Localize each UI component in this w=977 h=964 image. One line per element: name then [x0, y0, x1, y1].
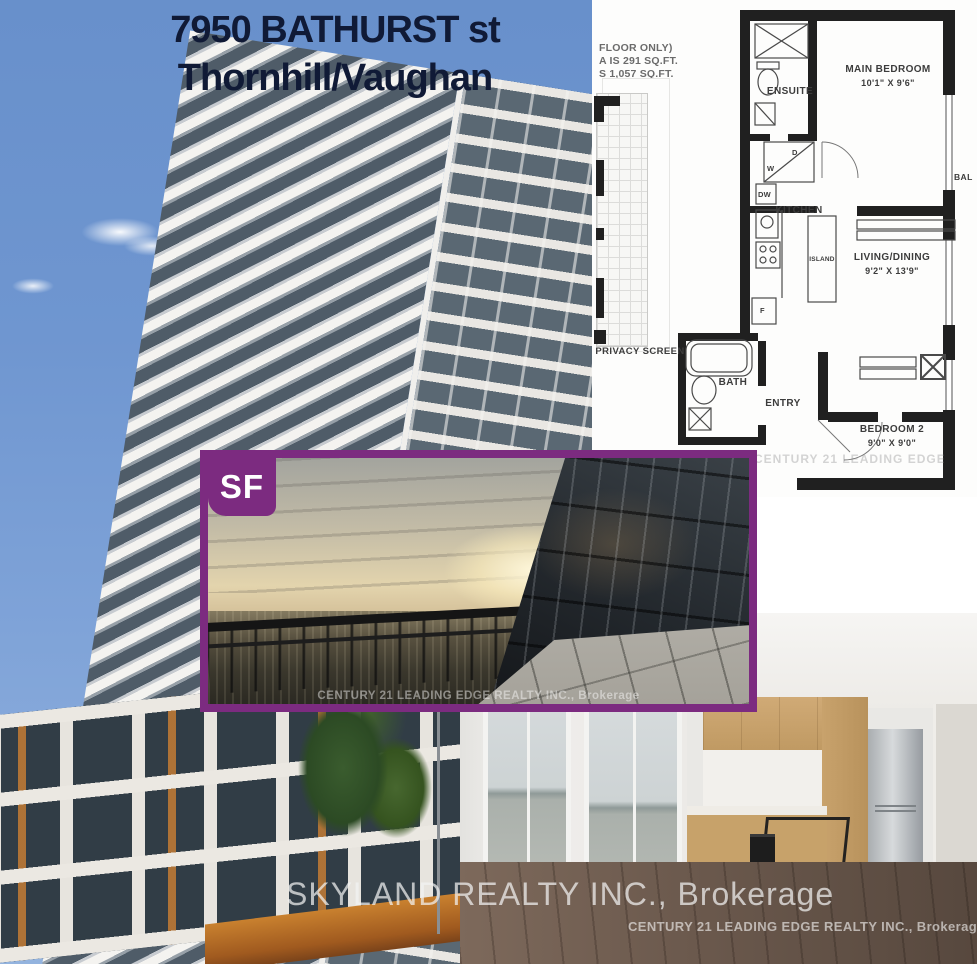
room-dim-main-bedroom: 10'1" X 9'6": [832, 78, 944, 88]
sf-badge: SF: [208, 458, 276, 516]
label-fridge: F: [760, 306, 765, 315]
kitchen-watermark: CENTURY 21 LEADING EDGE REALTY INC., Bro…: [628, 919, 977, 934]
skyland-watermark: SKYLAND REALTY INC., Brokerage: [286, 876, 834, 913]
room-label-entry: ENTRY: [758, 398, 808, 409]
room-label-ensuite: ENSUITE: [750, 86, 830, 97]
label-balcony: BAL: [954, 172, 976, 182]
floor-plan-panel: FLOOR ONLY) A IS 291 SQ.FT. S 1,057 SQ.F…: [592, 0, 977, 497]
label-privacy-screen: PRIVACY SCREEN: [592, 346, 688, 357]
balcony-photo: SF CENTURY 21 LEADING EDGE REALTY INC., …: [200, 450, 757, 712]
balcony-photo-inner: SF CENTURY 21 LEADING EDGE REALTY INC., …: [208, 458, 749, 704]
sf-badge-label: SF: [220, 468, 264, 506]
label-dishwasher: DW: [758, 190, 771, 199]
listing-collage: FLOOR ONLY) A IS 291 SQ.FT. S 1,057 SQ.F…: [0, 0, 977, 964]
title-line-1: 7950 BATHURST st: [110, 6, 560, 54]
room-label-bath: BATH: [708, 377, 758, 388]
room-label-island: ISLAND: [809, 256, 835, 263]
floor-plan-watermark: CENTURY 21 LEADING EDGE REALTY: [754, 452, 944, 466]
backsplash: [703, 750, 822, 810]
room-dim-bedroom2: 9'0" X 9'0": [842, 438, 942, 448]
room-label-main-bedroom: MAIN BEDROOM: [832, 64, 944, 75]
listing-title: 7950 BATHURST st Thornhill/Vaughan: [110, 6, 560, 102]
balcony-watermark: CENTURY 21 LEADING EDGE REALTY INC., Bro…: [208, 690, 749, 702]
title-line-2: Thornhill/Vaughan: [110, 54, 560, 102]
room-label-bedroom2: BEDROOM 2: [842, 424, 942, 435]
label-washer: W: [767, 164, 774, 173]
label-dryer: D: [792, 148, 798, 157]
room-label-kitchen: KITCHEN: [764, 205, 834, 216]
room-label-living-dining: LIVING/DINING: [837, 252, 947, 263]
room-dim-living-dining: 9'2" X 13'9": [837, 266, 947, 276]
